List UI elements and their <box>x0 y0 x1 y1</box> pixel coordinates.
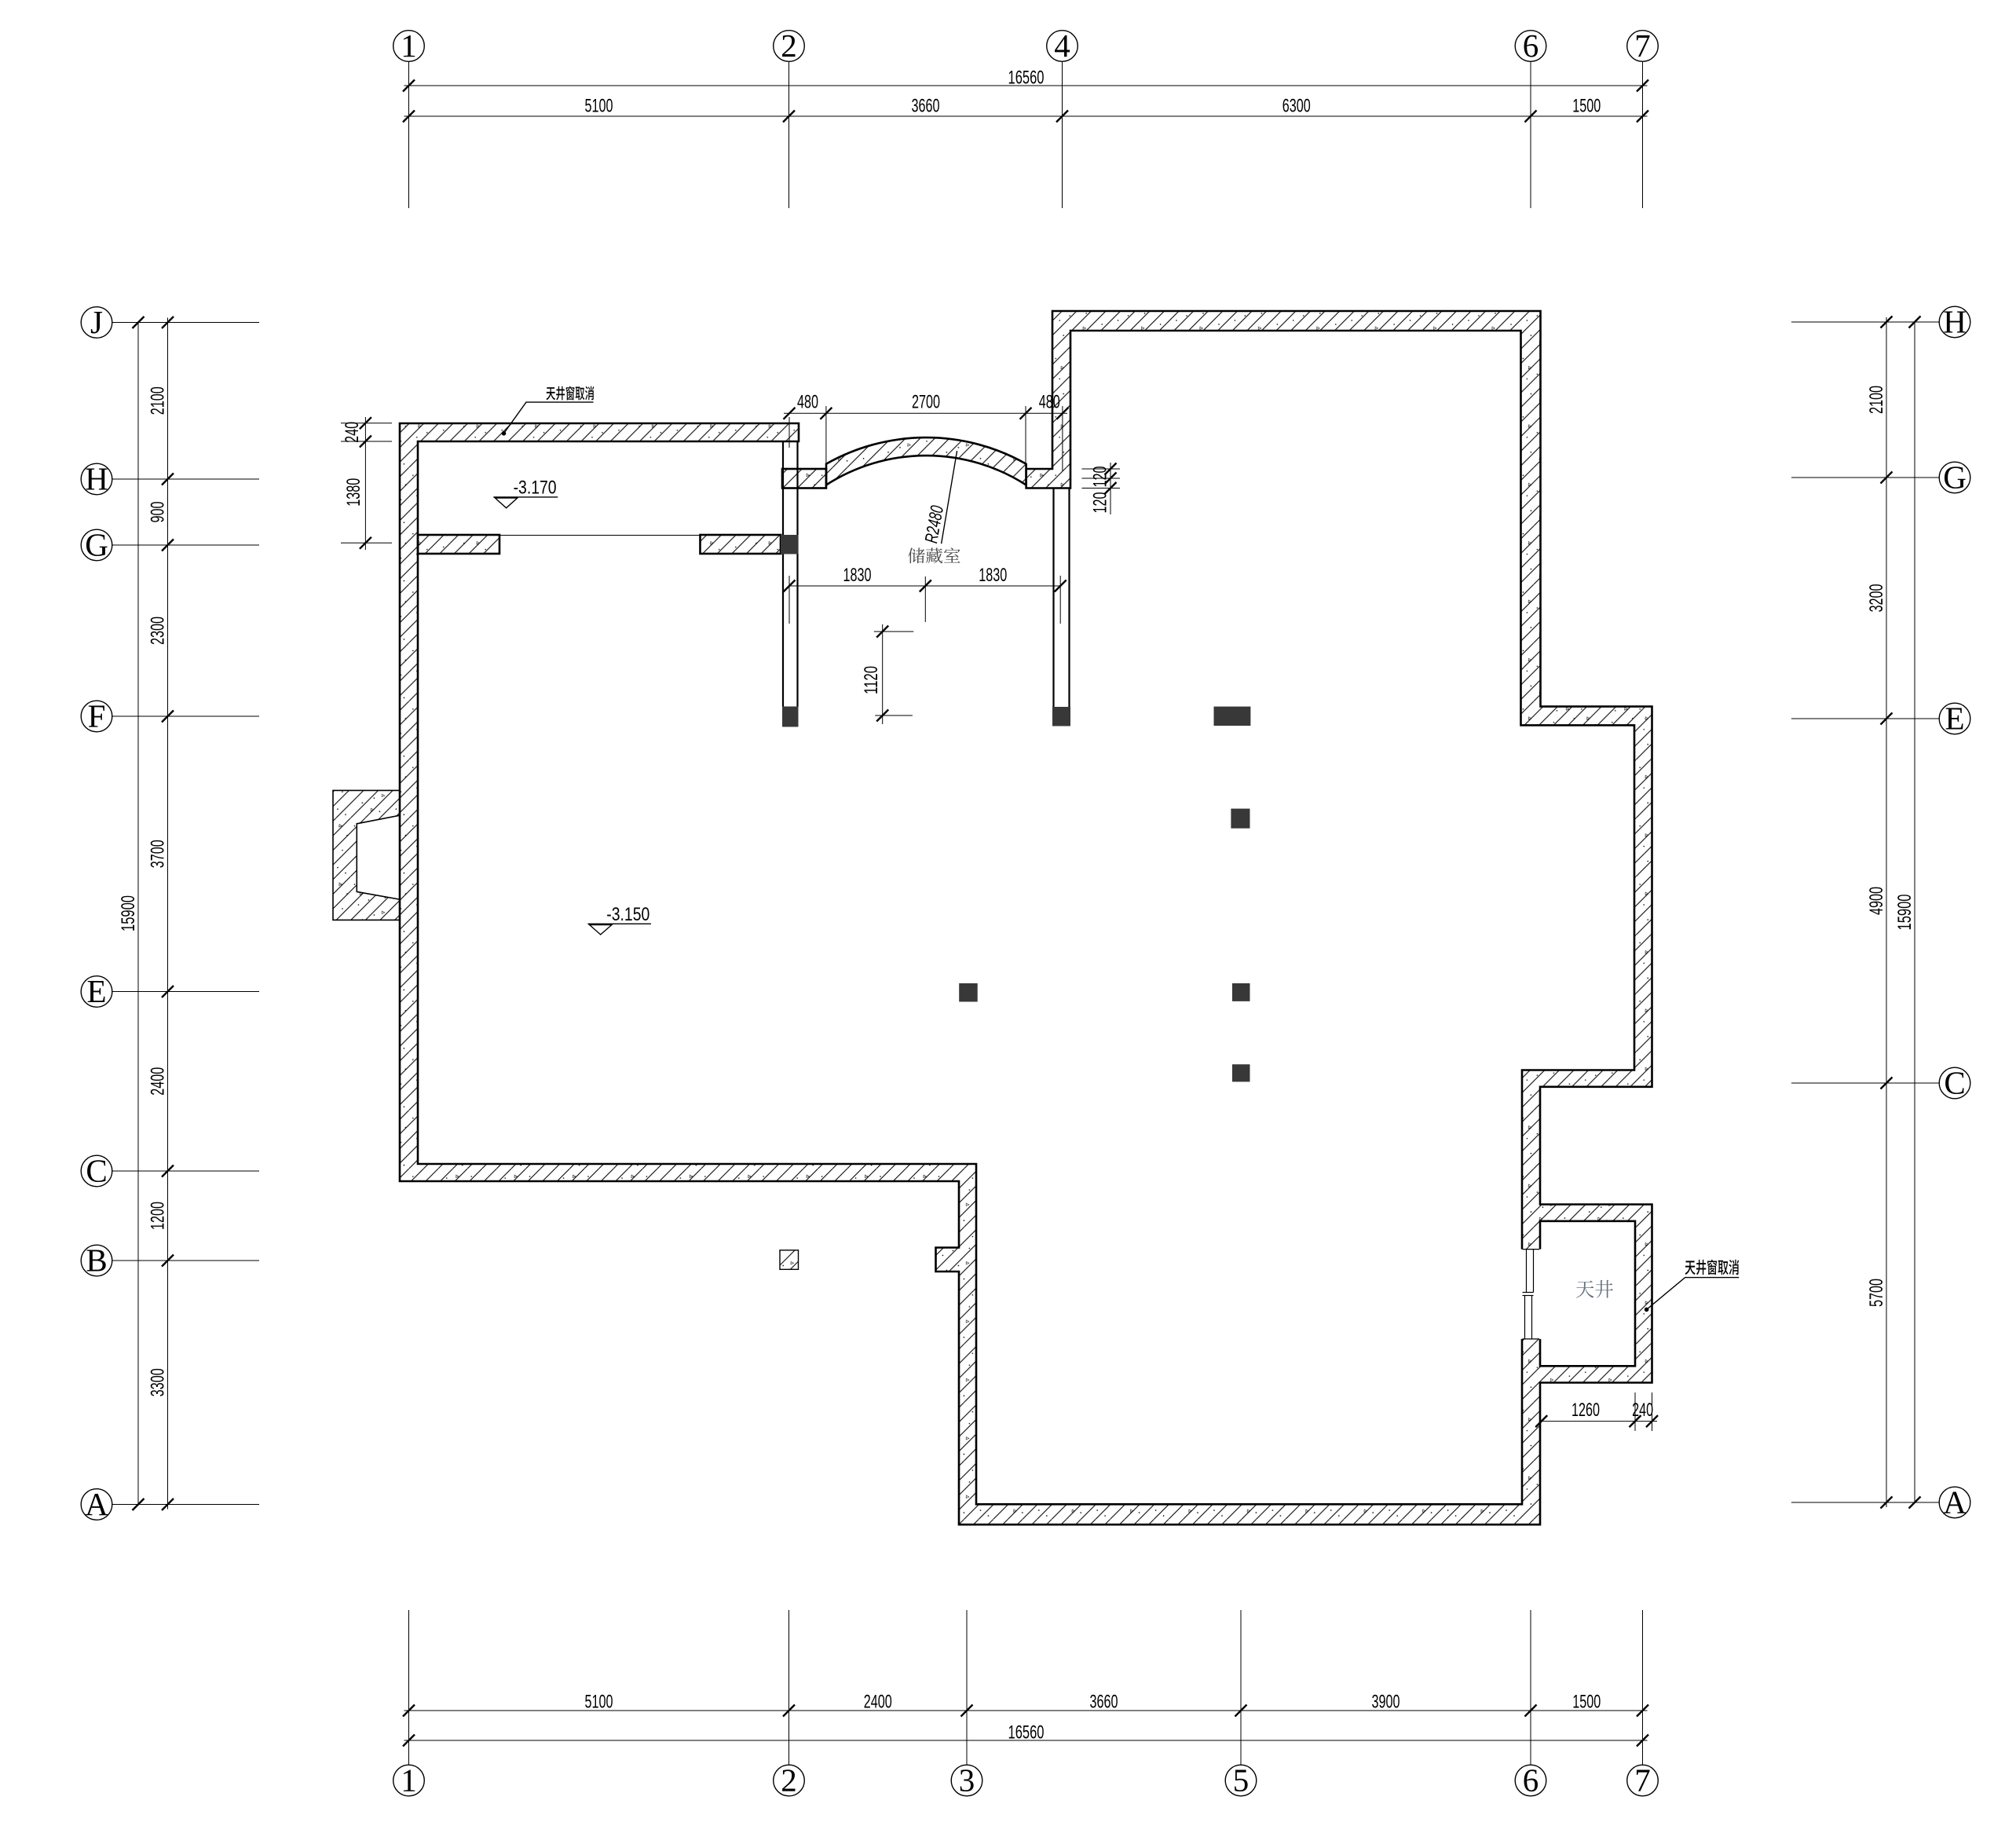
svg-text:H: H <box>1943 304 1967 340</box>
svg-text:H: H <box>85 461 108 497</box>
svg-text:5100: 5100 <box>585 1692 613 1713</box>
svg-text:900: 900 <box>148 502 169 523</box>
svg-text:G: G <box>85 527 108 563</box>
svg-text:A: A <box>1943 1484 1967 1520</box>
svg-text:3200: 3200 <box>1866 584 1887 613</box>
svg-text:3900: 3900 <box>1372 1692 1400 1713</box>
svg-text:-3.150: -3.150 <box>606 904 649 925</box>
svg-text:2300: 2300 <box>148 617 169 645</box>
svg-text:1: 1 <box>401 27 417 64</box>
svg-text:15900: 15900 <box>1894 895 1915 931</box>
svg-text:3660: 3660 <box>912 96 940 117</box>
svg-text:J: J <box>90 304 103 340</box>
svg-text:7: 7 <box>1634 1762 1651 1799</box>
svg-text:E: E <box>1945 701 1964 737</box>
svg-text:480: 480 <box>1039 392 1060 413</box>
svg-text:R2480: R2480 <box>920 504 947 545</box>
svg-text:2100: 2100 <box>1866 386 1887 414</box>
svg-text:1500: 1500 <box>1572 1692 1601 1713</box>
svg-text:C: C <box>86 1153 107 1189</box>
svg-text:15900: 15900 <box>118 895 139 931</box>
svg-text:7: 7 <box>1634 27 1651 64</box>
svg-text:120: 120 <box>1090 492 1111 514</box>
svg-text:1200: 1200 <box>148 1202 169 1230</box>
svg-text:1: 1 <box>401 1762 417 1799</box>
svg-text:240: 240 <box>1632 1400 1653 1421</box>
svg-text:4900: 4900 <box>1866 887 1887 915</box>
svg-text:F: F <box>88 698 106 734</box>
svg-text:-3.170: -3.170 <box>514 478 557 499</box>
svg-text:2400: 2400 <box>148 1067 169 1096</box>
svg-text:1380: 1380 <box>343 478 364 507</box>
svg-text:240: 240 <box>342 422 363 443</box>
svg-text:5: 5 <box>1233 1762 1249 1799</box>
svg-text:480: 480 <box>797 392 818 413</box>
svg-text:3: 3 <box>959 1762 975 1799</box>
svg-text:C: C <box>1944 1065 1965 1101</box>
svg-text:3660: 3660 <box>1090 1692 1118 1713</box>
svg-text:16560: 16560 <box>1008 68 1045 89</box>
svg-text:E: E <box>86 973 106 1009</box>
svg-text:6: 6 <box>1523 27 1539 64</box>
svg-text:3700: 3700 <box>148 840 169 868</box>
svg-text:2700: 2700 <box>912 392 940 413</box>
svg-text:6300: 6300 <box>1282 96 1311 117</box>
svg-text:2: 2 <box>781 1762 797 1799</box>
svg-text:G: G <box>1943 459 1967 496</box>
svg-text:3300: 3300 <box>148 1368 169 1396</box>
svg-text:A: A <box>85 1486 108 1522</box>
svg-text:1120: 1120 <box>861 666 882 694</box>
svg-text:2: 2 <box>781 27 797 64</box>
svg-text:120: 120 <box>1090 467 1111 488</box>
svg-text:6: 6 <box>1523 1762 1539 1799</box>
svg-text:4: 4 <box>1054 27 1070 64</box>
svg-text:2400: 2400 <box>864 1692 892 1713</box>
svg-text:5700: 5700 <box>1866 1279 1887 1307</box>
svg-text:1830: 1830 <box>843 565 872 586</box>
svg-text:1830: 1830 <box>979 565 1007 586</box>
svg-text:1500: 1500 <box>1572 96 1601 117</box>
svg-text:16560: 16560 <box>1008 1722 1045 1744</box>
svg-text:1260: 1260 <box>1571 1400 1600 1421</box>
svg-text:2100: 2100 <box>148 386 169 415</box>
svg-text:5100: 5100 <box>585 96 613 117</box>
svg-text:B: B <box>86 1242 107 1279</box>
